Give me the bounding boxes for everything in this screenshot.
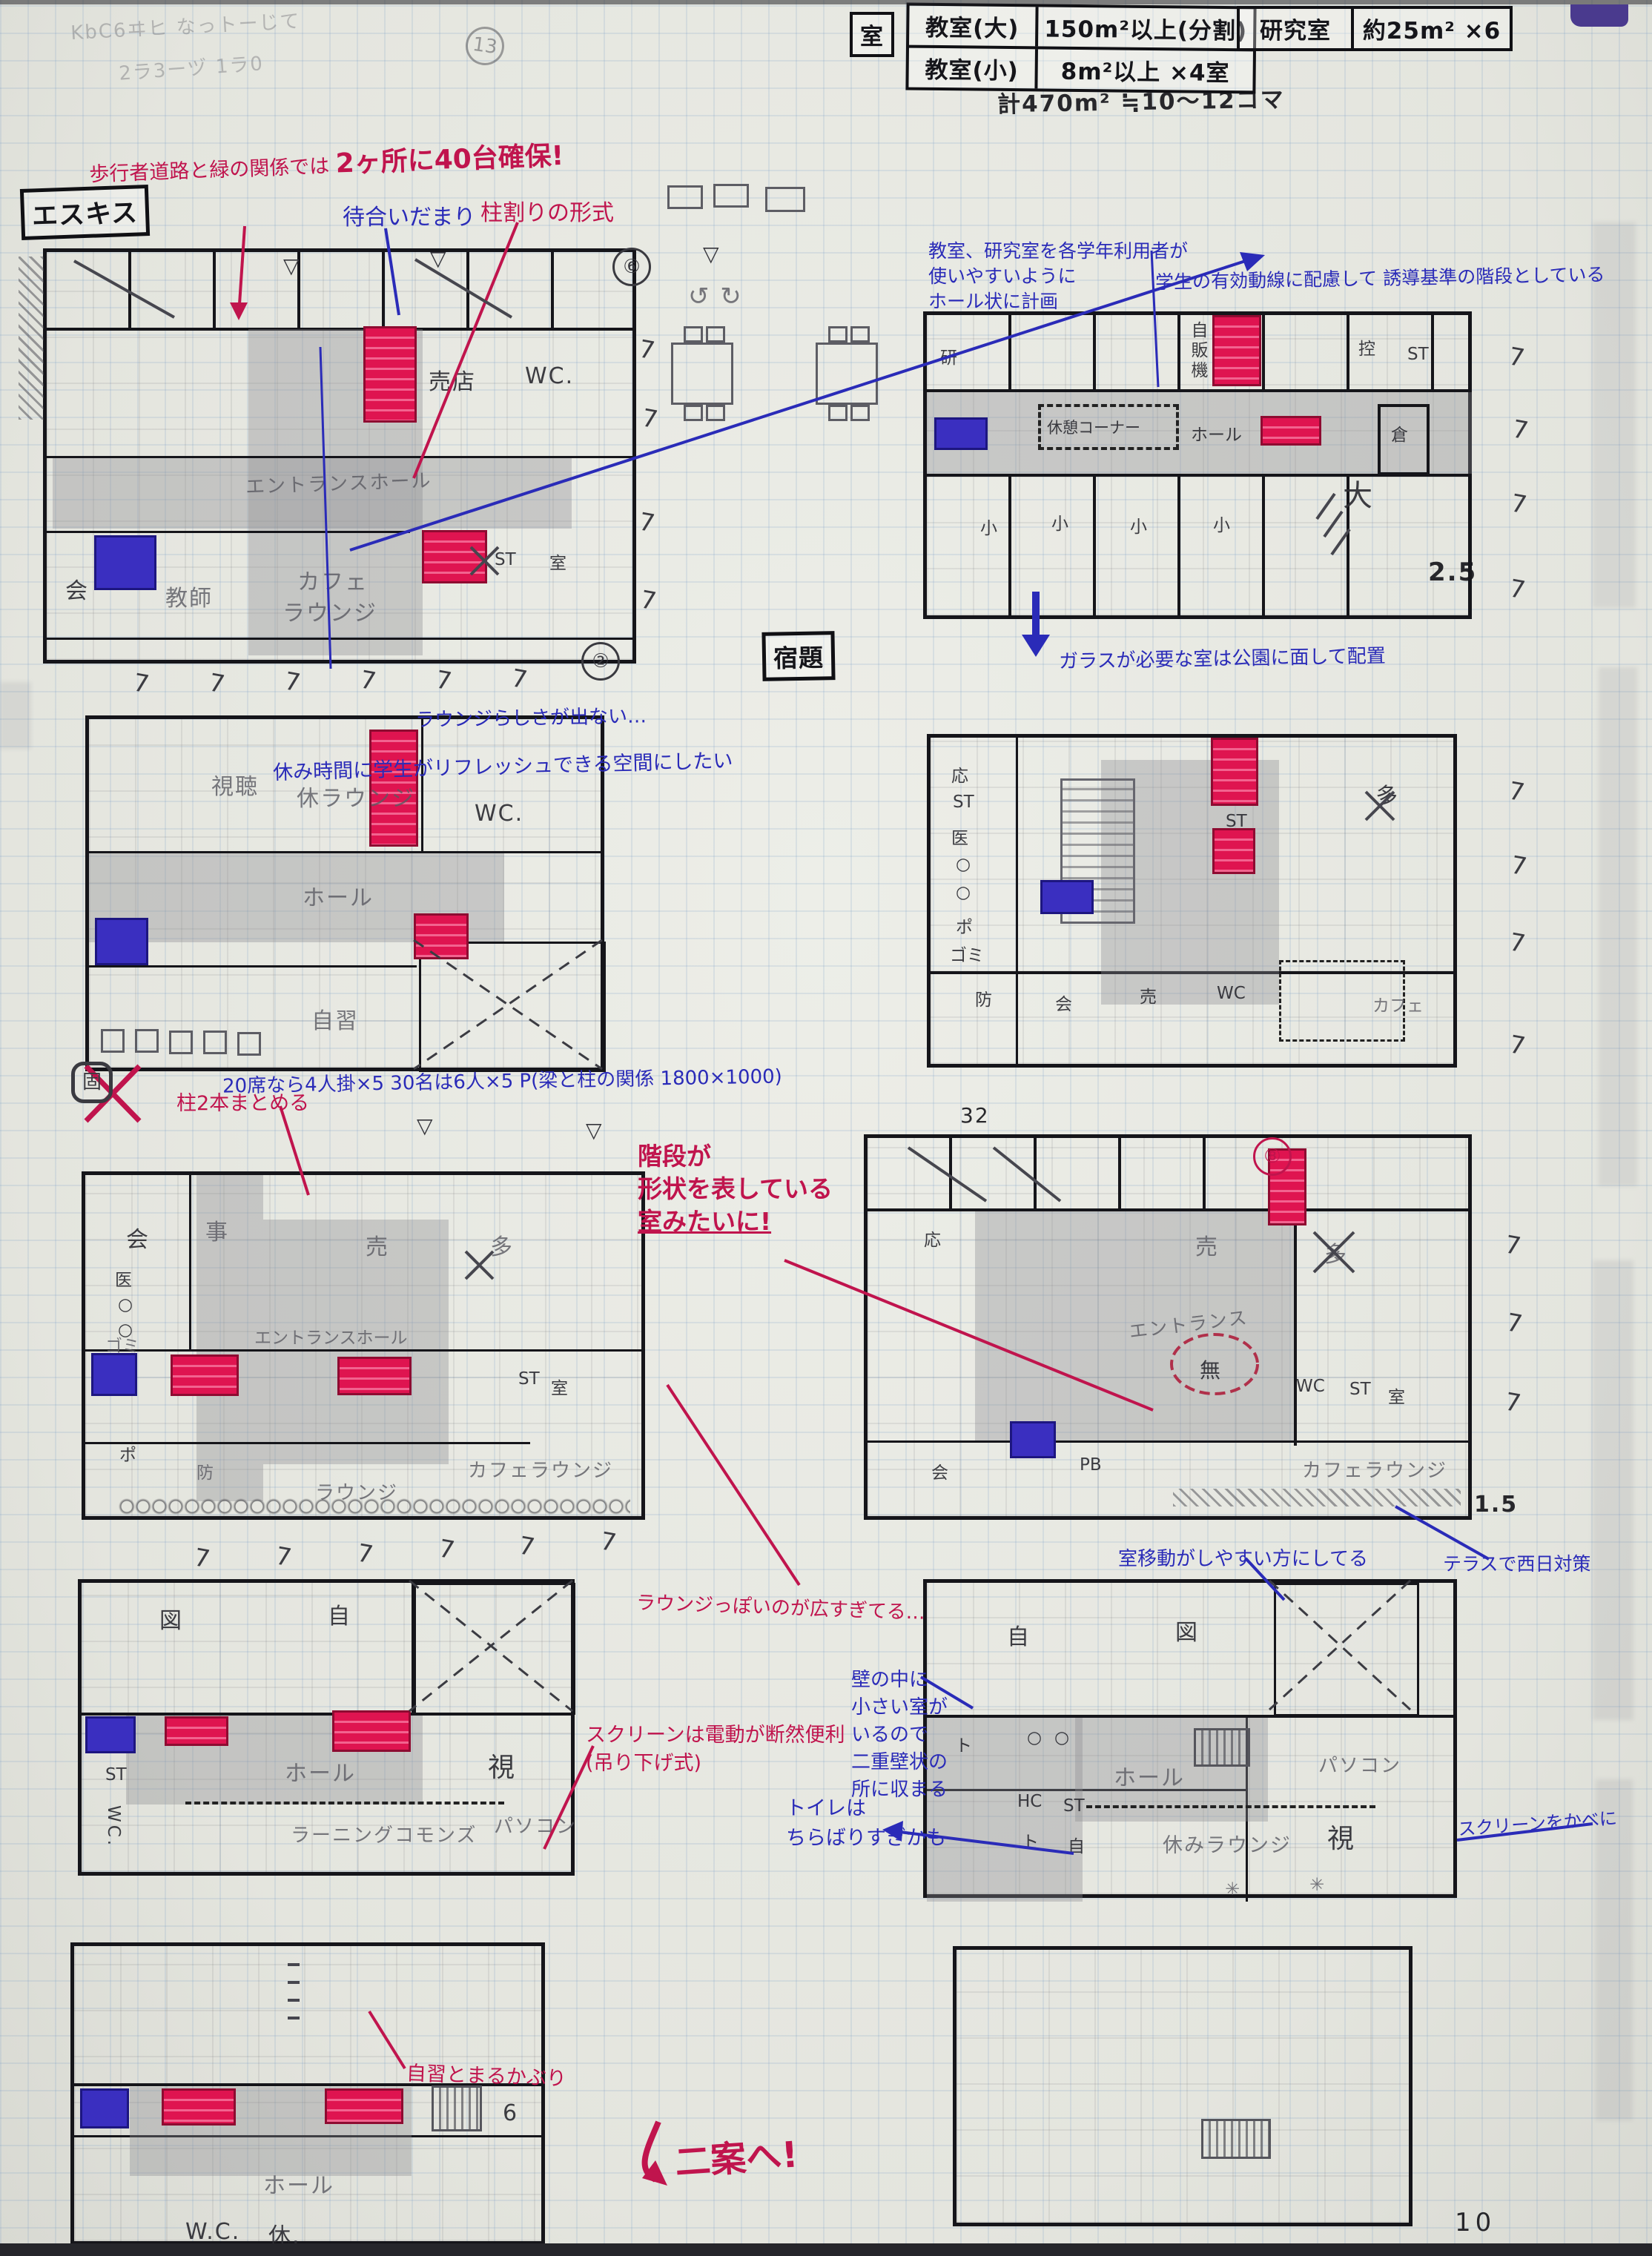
room-st: ST — [495, 550, 516, 569]
room-kai: 会 — [931, 1458, 948, 1483]
room-st: ST — [953, 793, 974, 812]
grid-dim-7: 7 — [1504, 1307, 1524, 1338]
room-circle: ○ — [956, 883, 971, 902]
shukudai-label: 宿題 — [766, 635, 832, 678]
room-bo: 防 — [196, 1458, 214, 1483]
note-terrace: テラスで西日対策 — [1443, 1549, 1591, 1576]
stairs-red — [337, 1357, 412, 1395]
note-parking: 歩行者道路と緑の関係では 2ヶ所に40台確保! — [88, 134, 564, 189]
cell-lab: 研究室 — [1240, 9, 1351, 48]
room-pc: パソコン — [494, 1811, 577, 1839]
note-stair-standard: 学生の有効動線に配慮して 誘導基準の階段としている — [1155, 260, 1605, 295]
room-hikae: 控 — [1358, 334, 1375, 360]
chair — [169, 1031, 193, 1054]
grid-dim-7: 7 — [207, 667, 227, 698]
shukudai-tag: 宿題 — [761, 631, 835, 681]
grid-dim-7: 7 — [509, 663, 529, 694]
room-med: 医 — [115, 1266, 132, 1291]
elevator-blue — [91, 1353, 137, 1396]
dim-32: 32 — [960, 1103, 990, 1128]
room-kai: 会 — [65, 572, 89, 605]
line: 形状を表している — [638, 1173, 833, 1205]
floor-plan-8: 自 図 ト ○ ○ ホール パソコン HC ST ト 自 休みラウンジ 視 — [923, 1579, 1457, 1898]
room-lounge: ラウンジ — [315, 1478, 398, 1505]
room-med: 医 — [951, 824, 968, 849]
table-row: 研究室 約25m² ×6 — [1240, 9, 1510, 48]
room-bai: 売 — [366, 1228, 389, 1261]
line: 小さい室が — [851, 1694, 948, 1721]
grid-dim-7: 7 — [131, 667, 151, 698]
line: 壁の中に — [851, 1667, 948, 1694]
room-lounge: ラウンジ — [283, 595, 377, 627]
room-library: 図 — [159, 1602, 183, 1635]
room-st: ST — [105, 1765, 127, 1784]
floor-plan-6: 図 自 ST WC. ホール 視 ラーニングコモンズ パソコン — [78, 1579, 575, 1876]
note-toilets: トイレは ちらばりすぎかも — [786, 1794, 946, 1853]
line: ホール状に計画 — [928, 289, 1188, 314]
stairs-red — [332, 1710, 411, 1752]
note-circulation: 室移動がしやすい方にしてる — [1118, 1544, 1368, 1571]
room-selfstudy: 自 — [328, 1598, 351, 1630]
note-parking-part1: 歩行者道路と緑の関係では — [89, 155, 330, 186]
stairs-red — [1212, 828, 1255, 874]
cell-classroom-large-area: 150m²以上(分割) — [1035, 7, 1254, 48]
room-st: ST — [1063, 1796, 1085, 1816]
grid-dim-7: 7 — [1509, 488, 1529, 519]
room-bo: 防 — [975, 985, 992, 1010]
note-overlap: 自習とまるかぶり — [406, 2057, 566, 2091]
room-large: 大 — [1333, 480, 1376, 512]
room-lab: 研 — [940, 343, 957, 368]
note-screen-wall: スクリーンをかべに — [1457, 1804, 1618, 1841]
wall-cells — [927, 477, 1360, 615]
grid-box — [432, 2085, 482, 2131]
grid-dim-7: 7 — [1507, 573, 1527, 604]
multi-room-outline — [419, 942, 606, 1072]
chair — [101, 1029, 125, 1053]
elevator-blue — [1040, 880, 1094, 914]
room-selfstudy: 自習 — [311, 1002, 359, 1035]
floor-plan-homework: 応 ST 医 ○ ○ ポ ゴミ ST 防 会 売 WC 多 カフェ — [927, 734, 1457, 1068]
grid-dim-7: 7 — [358, 664, 378, 695]
dim-6: 6 — [503, 2100, 518, 2126]
notebook-page: 室 教室(大) 150m²以上(分割) 教室(小) 8m²以上 ×4室 研究室 … — [0, 0, 1652, 2256]
photo-corner-blob — [1570, 4, 1628, 27]
cell-lab-area: 約25m² ×6 — [1351, 9, 1510, 48]
cell-classroom-small: 教室(小) — [908, 48, 1035, 89]
room-hc: HC — [1017, 1792, 1042, 1811]
room-st: ST — [1349, 1380, 1371, 1399]
dim-2-5: 2.5 — [1428, 558, 1477, 587]
room-st2: ST — [1226, 812, 1247, 831]
dim-1-5: 1.5 — [1474, 1492, 1518, 1518]
elevator-blue — [85, 1716, 136, 1753]
photo-edge-bottom — [0, 2243, 1652, 2256]
chair — [850, 326, 870, 343]
desk-sketch — [765, 187, 805, 212]
stairs-red — [1261, 416, 1321, 446]
room-small-1: 小 — [980, 514, 997, 539]
wall — [189, 1175, 191, 1349]
room-po: ポ — [956, 913, 973, 938]
chair — [203, 1031, 227, 1054]
room-wc: WC — [1217, 984, 1246, 1003]
chair — [684, 405, 703, 421]
chair — [684, 326, 703, 343]
grid-dim-7: 7 — [637, 334, 657, 365]
pencil-scribble-1: KbC6ヰヒ なっトーじて — [70, 6, 301, 45]
room-shop: 売店 — [429, 363, 476, 396]
note-glass-park: ガラスが必要な室は公園に面して配置 — [1059, 641, 1386, 674]
esquisse-tag: エスキス — [20, 185, 150, 240]
room-wc: WC. — [475, 801, 523, 827]
grid-dim-7: 7 — [1507, 341, 1527, 372]
elevator-blue — [1010, 1421, 1056, 1458]
room-entrance-hall: エントランスホール — [254, 1323, 408, 1349]
room-toilet2: ト — [1022, 1827, 1039, 1853]
room-ta: 多 — [1324, 1236, 1348, 1268]
enclosed-kanji: 固 — [71, 1062, 113, 1103]
note-next-plan: 二案へ! — [673, 2125, 799, 2185]
room-toilet: ト — [955, 1731, 972, 1756]
room-bai: 売 — [1195, 1228, 1219, 1261]
line: 階段が — [638, 1140, 833, 1173]
room-av: 視 — [1327, 1817, 1355, 1856]
wall — [47, 638, 632, 640]
table-sketch — [671, 343, 733, 405]
room-av: 視聴 — [211, 768, 259, 801]
header-room: 室 — [853, 15, 891, 54]
grid-dim-7: 7 — [1510, 414, 1530, 445]
line: 使いやすいように — [928, 264, 1188, 289]
room-wc: W.C. — [185, 2219, 240, 2245]
chair — [828, 405, 848, 421]
circled-8: ⑧ — [1253, 1137, 1292, 1176]
fixture-circle: ○ — [1027, 1728, 1042, 1747]
wall — [1294, 1208, 1297, 1446]
circled-6: ⑥ — [612, 248, 651, 286]
room-o: 応 — [951, 761, 968, 787]
room-vending: 自販機 — [1185, 321, 1210, 381]
wall — [89, 965, 417, 967]
room-ta: 多 — [1375, 778, 1399, 810]
stairs-red — [414, 913, 469, 959]
note-columns: 柱2本まとめる — [176, 1087, 309, 1116]
grid-dim-7: 7 — [1507, 775, 1527, 807]
floor-plan-top-right: 研 自販機 控 ST 倉 休憩コーナー ホール 小 小 小 小 大 — [923, 311, 1472, 619]
note-plan1-lounge: ラウンジらしさが出ない… — [415, 701, 647, 732]
stairs-red — [1212, 315, 1261, 386]
fixture-circle: ○ — [1054, 1728, 1069, 1747]
stairs-red — [1211, 738, 1258, 806]
room-circle: ○ — [956, 855, 971, 874]
line: ちらばりすぎかも — [786, 1824, 946, 1853]
room-hall: ホール — [263, 2167, 334, 2200]
rotation-arrows: ↺ ↻ — [688, 282, 743, 311]
room-wc: WC. — [104, 1805, 123, 1848]
table-row: 教室(小) 8m²以上 ×4室 — [908, 45, 1253, 91]
grid-dim-7: 7 — [637, 506, 657, 537]
room-gomi: ゴミ — [950, 941, 984, 966]
entrance-mark: ▽ — [430, 246, 446, 271]
grid-dim-7: 7 — [1507, 1029, 1527, 1060]
chair — [706, 405, 725, 421]
wall — [868, 1440, 1468, 1443]
stairs-red — [171, 1354, 239, 1396]
stairs-red — [325, 2088, 403, 2124]
stairs-red — [162, 2088, 236, 2126]
room-hall: ホール — [1114, 1759, 1185, 1792]
table-sketch — [816, 343, 878, 405]
room-av: 視 — [488, 1746, 516, 1784]
room-shitsu: 室 — [1388, 1383, 1405, 1408]
bench-seats — [1201, 2119, 1271, 2159]
stairs-red — [165, 1716, 228, 1746]
planting-hatch — [19, 257, 44, 420]
desk-sketch — [713, 184, 749, 208]
floor-plan-9 — [953, 1946, 1413, 2226]
note-small-rooms: 壁の中に 小さい室が いるので 二重壁状の 所に収まる — [851, 1667, 948, 1804]
chair — [850, 405, 870, 421]
bleedthrough-2 — [1599, 667, 1637, 1186]
wall-cells — [868, 1138, 1228, 1208]
photo-edge-top — [0, 0, 1652, 4]
room-hall: ホール — [1191, 420, 1242, 446]
grid-dim-7: 7 — [1503, 1386, 1523, 1418]
grid-dim-7: 7 — [1503, 1229, 1523, 1260]
note-hashira: 柱割りの形式 — [480, 194, 614, 227]
room-wc: WC — [1296, 1377, 1325, 1396]
note-machiai: 待合いだまり — [343, 199, 475, 231]
wall — [421, 719, 423, 851]
room-rest-lounge: 休ラウンジ — [297, 780, 415, 813]
grid-dim-7: 7 — [640, 403, 660, 434]
grid-dim-7: 7 — [1509, 850, 1529, 881]
line: 二重壁状の — [851, 1749, 948, 1776]
table-row: 教室(大) 150m²以上(分割) — [909, 6, 1254, 49]
room-selfstudy: 自 — [1007, 1618, 1031, 1651]
multi-room-outline — [414, 1583, 575, 1715]
wall — [85, 1442, 530, 1444]
line: 室みたいに! — [638, 1205, 833, 1238]
wall — [47, 456, 632, 458]
entrance-mark: ▽ — [417, 1114, 433, 1138]
entrance-mark: ▽ — [703, 242, 719, 266]
esquisse-label: エスキス — [24, 188, 146, 236]
grid-dim-7: 7 — [598, 1526, 618, 1557]
room-wc: WC. — [525, 363, 574, 389]
room-st: ST — [1407, 345, 1429, 364]
room-hall: ホール — [303, 879, 374, 912]
room-rest-lounge: 休みラウンジ — [1163, 1829, 1292, 1858]
room-cafe: カフェ — [297, 563, 369, 596]
line: 教室、研究室を各学年利用者が — [928, 239, 1188, 264]
wall — [85, 1349, 641, 1352]
room-kai: 会 — [126, 1221, 150, 1254]
floor-plan-4: 応 売 多 エントランス 無 WC ST 室 カフェラウンジ PB 会 — [864, 1134, 1472, 1520]
elevator-blue — [934, 417, 988, 450]
chair — [706, 326, 725, 343]
room-circle: ○ — [118, 1295, 133, 1314]
room-o: 応 — [924, 1225, 941, 1251]
entrance-mark: ▽ — [586, 1118, 602, 1142]
grid-dim-7: 7 — [638, 584, 658, 615]
note-stairs-shape: 階段が 形状を表している 室みたいに! — [638, 1140, 833, 1238]
wall — [47, 531, 410, 533]
line: スクリーンは電動が断然便利 — [586, 1721, 845, 1750]
lab-table: 研究室 約25m² ×6 — [1237, 6, 1513, 51]
floor-plan-3: 会 事 売 多 医 ○ ○ ゴミ エントランスホール ST 室 ポ 防 ラウンジ… — [82, 1171, 645, 1520]
room-shitsu: 室 — [549, 549, 566, 574]
room-rest-corner: 休憩コーナー — [1047, 416, 1140, 438]
stairs-red — [422, 530, 487, 583]
note-lounge-size: ラウンジっぽいのが広すぎてる… — [635, 1587, 925, 1625]
room-label-box: 室 — [850, 12, 894, 57]
room-kai: 会 — [1055, 990, 1072, 1015]
wall — [1016, 738, 1018, 1064]
room-st: ST — [518, 1369, 540, 1389]
chair — [237, 1032, 261, 1056]
room-ta: 多 — [490, 1228, 514, 1261]
room-small-3: 小 — [1130, 512, 1147, 537]
note-screen-motor: スクリーンは電動が断然便利 (吊り下げ式) — [586, 1721, 845, 1778]
room-bai: 売 — [1140, 982, 1157, 1008]
elevator-blue — [94, 535, 156, 590]
grid-dim-7: 7 — [437, 1533, 457, 1564]
pencil-scribble-2: 2ラ3ーヅ 1ラ0 — [118, 48, 265, 86]
circled-2: ② — [581, 642, 620, 681]
note-parking-part2: 2ヶ所に40台確保! — [335, 141, 564, 179]
lounge-dash — [1086, 1805, 1375, 1808]
room-pb: PB — [1080, 1455, 1102, 1475]
grid-dim-7: 7 — [517, 1530, 537, 1561]
bleedthrough-3 — [1593, 1260, 1633, 1720]
line: (吊り下げ式) — [586, 1750, 845, 1778]
grid-dim-7: 7 — [283, 666, 303, 697]
room-pc: パソコン — [1318, 1750, 1401, 1778]
room-hall: ホール — [285, 1755, 356, 1787]
note-plan-policy: 教室、研究室を各学年利用者が 使いやすいように ホール状に計画 — [928, 239, 1188, 314]
room-small-2: 小 — [1051, 509, 1068, 535]
desk-sketch — [667, 185, 703, 209]
room-shitsu: 室 — [551, 1374, 568, 1399]
cell-classroom-large: 教室(大) — [909, 6, 1036, 47]
floor-plan-1: 売店 WC. エントランスホール ST 室 会 教師 カフェ ラウンジ 多 — [43, 248, 636, 664]
room-selfstudy2: 自 — [1068, 1832, 1085, 1857]
chair — [828, 326, 848, 343]
circled-13: 13 — [463, 24, 507, 68]
room-po: ポ — [119, 1440, 136, 1466]
bench-seats — [1194, 1728, 1250, 1767]
room-cafelounge: カフェラウンジ — [468, 1455, 613, 1483]
grid-dim-7: 7 — [274, 1541, 294, 1572]
room-cafe: カフェ — [1372, 991, 1424, 1016]
margin-smudge — [0, 682, 31, 749]
elevator-blue — [80, 2088, 129, 2128]
wall-cells — [47, 252, 632, 328]
multi-room-outline — [1274, 1583, 1419, 1716]
room-mu: 無 — [1200, 1354, 1222, 1384]
grid-dim-7: 7 — [1507, 927, 1527, 958]
cell-classroom-small-area: 8m²以上 ×4室 — [1034, 49, 1253, 90]
floor-plan-7: 6 ホール W.C. 休. — [70, 1942, 545, 2245]
grid-dim-7: 7 — [434, 664, 454, 695]
room-kura: 倉 — [1391, 420, 1408, 446]
line: いるので — [851, 1721, 948, 1749]
elevator-blue — [95, 918, 148, 965]
program-table: 教室(大) 150m²以上(分割) 教室(小) 8m²以上 ×4室 — [905, 3, 1256, 94]
room-ji: 事 — [205, 1214, 229, 1246]
chair — [135, 1029, 159, 1053]
room-kyoshi: 教師 — [165, 580, 213, 612]
pencil-mark: ✳ — [1225, 1879, 1241, 1899]
pencil-mark: ✳ — [1309, 1874, 1326, 1895]
entrance-mark: ▽ — [283, 254, 300, 278]
room-cafelounge: カフェラウンジ — [1302, 1455, 1447, 1483]
page-number: 10 — [1455, 2208, 1496, 2237]
grid-dim-7: 7 — [192, 1542, 212, 1573]
line: トイレは — [786, 1794, 946, 1824]
stairs-red — [363, 326, 417, 423]
learning-commons-dash — [185, 1802, 504, 1805]
room-learning-commons: ラーニングコモンズ — [291, 1820, 477, 1848]
room-small-4: 小 — [1213, 511, 1230, 536]
room-library: 図 — [1175, 1614, 1199, 1647]
terrace-hatch — [1173, 1489, 1461, 1506]
grid-dim-7: 7 — [355, 1538, 375, 1569]
room-gomi-outside: ゴミ — [105, 1332, 139, 1357]
